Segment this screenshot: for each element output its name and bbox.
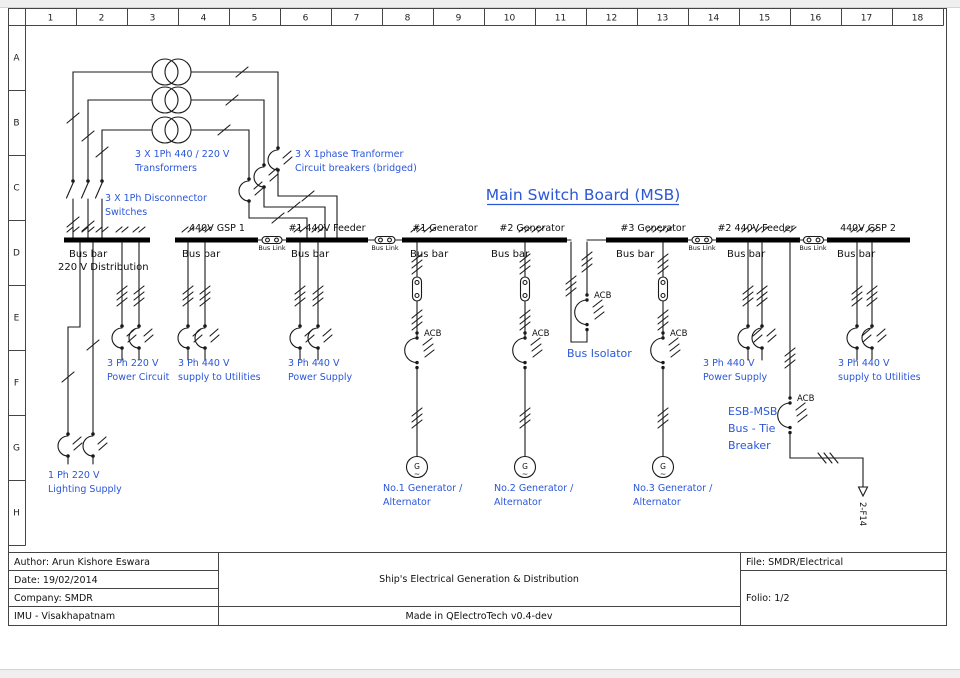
ann-gen2-2: Alternator bbox=[494, 497, 542, 508]
circuit-diagram: 2-F14 440V GSP 1 #1 440V Feeder #1 Gener… bbox=[48, 59, 921, 526]
grid-row-label: F bbox=[14, 379, 19, 389]
titleblock-made-in: Made in QElectroTech v0.4-dev bbox=[406, 611, 553, 622]
bridged-breaker-3 bbox=[239, 177, 263, 203]
label-busbar: Bus bar bbox=[491, 249, 530, 260]
ann-bus-tie-3: Breaker bbox=[728, 439, 771, 452]
ann-power220-1: 3 Ph 220 V bbox=[107, 358, 159, 369]
titleblock-author: Author: Arun Kishore Eswara bbox=[14, 557, 150, 568]
label-buslink: Bus Link bbox=[258, 244, 286, 252]
ann-utilities2-2: supply to Utilities bbox=[838, 372, 921, 383]
label-buslink: Bus Link bbox=[371, 244, 399, 252]
label-gen3: #3 Generator bbox=[620, 223, 685, 234]
grid-column-label: 2 bbox=[99, 14, 105, 24]
ann-gen1-1: No.1 Generator / bbox=[383, 483, 463, 494]
grid-column-label: 12 bbox=[606, 14, 617, 24]
grid-row-label: A bbox=[13, 54, 20, 64]
ann-power440-1b: Power Supply bbox=[288, 372, 352, 383]
ann-gen1-2: Alternator bbox=[383, 497, 431, 508]
label-buslink: Bus Link bbox=[688, 244, 716, 252]
ann-lighting-1: 1 Ph 220 V bbox=[48, 470, 100, 481]
bus-link-3 bbox=[687, 237, 717, 244]
transformer-1 bbox=[152, 59, 191, 85]
titleblock-drawing-title: Ship's Electrical Generation & Distribut… bbox=[379, 574, 579, 585]
grid-column-label: 4 bbox=[201, 14, 207, 24]
grid-column-label: 6 bbox=[303, 14, 309, 24]
ann-gen3-1: No.3 Generator / bbox=[633, 483, 713, 494]
bridged-breaker-1 bbox=[268, 146, 292, 172]
ann-transformers-2: Transformers bbox=[134, 163, 197, 174]
grid-column-label: 9 bbox=[456, 14, 462, 24]
grid-column-label: 17 bbox=[861, 14, 872, 24]
ann-bus-isolator: Bus Isolator bbox=[567, 347, 632, 360]
ann-utilities1-1: 3 Ph 440 V bbox=[178, 358, 230, 369]
lighting-branch bbox=[58, 242, 107, 464]
ann-bus-tie-2: Bus - Tie bbox=[728, 422, 776, 435]
grid-column-label: 8 bbox=[405, 14, 411, 24]
bus-link-2 bbox=[370, 237, 400, 244]
lighting-breaker-2 bbox=[83, 432, 107, 458]
label-busbar: Bus bar bbox=[410, 249, 449, 260]
canvas-margin-top bbox=[0, 0, 960, 7]
ann-utilities1-2: supply to Utilities bbox=[178, 372, 261, 383]
ruler-top: 1 2 3 4 5 6 7 8 9 10 11 12 13 14 15 16 1… bbox=[48, 14, 924, 24]
titleblock-file: File: SMDR/Electrical bbox=[746, 557, 843, 568]
bus-link-1 bbox=[257, 237, 287, 244]
ann-gen2-1: No.2 Generator / bbox=[494, 483, 574, 494]
diagram-title: Main Switch Board (MSB) bbox=[486, 186, 681, 204]
label-busbar: Bus bar bbox=[69, 249, 108, 260]
down-arrow-icon bbox=[859, 487, 868, 496]
grid-row-label: H bbox=[13, 509, 20, 519]
ann-bridged-1: 3 X 1phase Tranformer bbox=[295, 149, 403, 160]
ann-power440-2b: Power Supply bbox=[703, 372, 767, 383]
generator-branch-3 bbox=[651, 242, 688, 479]
titleblock-date: Date: 19/02/2014 bbox=[14, 575, 98, 586]
label-busbar: Bus bar bbox=[616, 249, 655, 260]
grid-column-label: 5 bbox=[252, 14, 258, 24]
label-busbar: Bus bar bbox=[291, 249, 330, 260]
bus-tie-branch: 2-F14 bbox=[778, 242, 868, 526]
grid-row-label: C bbox=[13, 184, 19, 194]
ann-power440-2a: 3 Ph 440 V bbox=[703, 358, 755, 369]
title-block: Author: Arun Kishore Eswara Date: 19/02/… bbox=[9, 553, 947, 626]
titleblock-folio: Folio: 1/2 bbox=[746, 593, 790, 604]
label-gen1: #1 Generator bbox=[412, 223, 477, 234]
label-gsp1: 440V GSP 1 bbox=[189, 223, 245, 234]
grid-column-label: 18 bbox=[912, 14, 924, 24]
ann-utilities2-1: 3 Ph 440 V bbox=[838, 358, 890, 369]
label-feeder2: #2 440V Feeder bbox=[717, 223, 794, 234]
transformer-2 bbox=[152, 87, 191, 113]
ann-disconnectors-2: Switches bbox=[105, 207, 147, 218]
disconnector-switch bbox=[67, 179, 75, 198]
bus-link-4 bbox=[799, 237, 829, 244]
label-gsp2: 440V GSP 2 bbox=[840, 223, 896, 234]
label-busbar: Bus bar bbox=[727, 249, 766, 260]
feeder-220v-power-1 bbox=[112, 242, 136, 360]
grid-row-label: E bbox=[14, 314, 20, 324]
grid-column-label: 3 bbox=[150, 14, 156, 24]
transformer-3 bbox=[152, 117, 191, 143]
grid-row-label: D bbox=[13, 249, 20, 259]
ann-power220-2: Power Circuit bbox=[107, 372, 170, 383]
generator-branch-1 bbox=[405, 242, 442, 479]
schematic-page: ACB G ~ bbox=[0, 0, 960, 678]
label-busbar: Bus bar bbox=[182, 249, 221, 260]
grid-column-label: 11 bbox=[555, 14, 566, 24]
feeder-ref-label: 2-F14 bbox=[857, 502, 867, 526]
lighting-breaker-1 bbox=[58, 432, 82, 458]
ruler-row-dividers bbox=[9, 91, 26, 481]
bus-isolator-acb bbox=[575, 291, 612, 331]
ann-lighting-2: Lighting Supply bbox=[48, 484, 122, 495]
grid-row-label: B bbox=[13, 119, 19, 129]
ann-transformers-1: 3 X 1Ph 440 / 220 V bbox=[135, 149, 230, 160]
grid-column-label: 13 bbox=[657, 14, 668, 24]
ann-disconnectors-1: 3 X 1Ph Disconnector bbox=[105, 193, 207, 204]
feeder-220v-power-2 bbox=[129, 242, 153, 360]
grid-column-label: 7 bbox=[354, 14, 360, 24]
ann-bridged-2: Circuit breakers (bridged) bbox=[295, 163, 417, 174]
schematic-canvas: ACB G ~ bbox=[0, 0, 960, 678]
bus-tie-acb bbox=[778, 394, 815, 434]
generator-branch-2 bbox=[513, 242, 550, 479]
grid-column-label: 1 bbox=[48, 14, 54, 24]
disconnector-switch bbox=[96, 179, 104, 198]
grid-column-label: 15 bbox=[759, 14, 770, 24]
label-busbar: Bus bar bbox=[837, 249, 876, 260]
label-feeder1: #1 440V Feeder bbox=[288, 223, 365, 234]
ann-gen3-2: Alternator bbox=[633, 497, 681, 508]
page-frame bbox=[9, 9, 947, 626]
ann-bus-tie-1: ESB-MSB bbox=[728, 405, 777, 418]
grid-column-label: 14 bbox=[708, 14, 720, 24]
grid-column-label: 10 bbox=[504, 14, 516, 24]
label-buslink: Bus Link bbox=[799, 244, 827, 252]
titleblock-company: Company: SMDR bbox=[14, 593, 93, 604]
label-gen2: #2 Generator bbox=[499, 223, 564, 234]
titleblock-institute: IMU - Visakhapatnam bbox=[14, 611, 115, 622]
disconnector-switch bbox=[82, 179, 90, 198]
canvas-margin-bottom bbox=[0, 669, 960, 678]
grid-row-label: G bbox=[13, 444, 20, 454]
label-220v-distribution: 220 V Distribution bbox=[58, 262, 149, 273]
bridged-breaker-2 bbox=[254, 163, 278, 189]
bus-isolator-branch bbox=[566, 242, 612, 342]
grid-column-label: 16 bbox=[810, 14, 822, 24]
ann-power440-1a: 3 Ph 440 V bbox=[288, 358, 340, 369]
